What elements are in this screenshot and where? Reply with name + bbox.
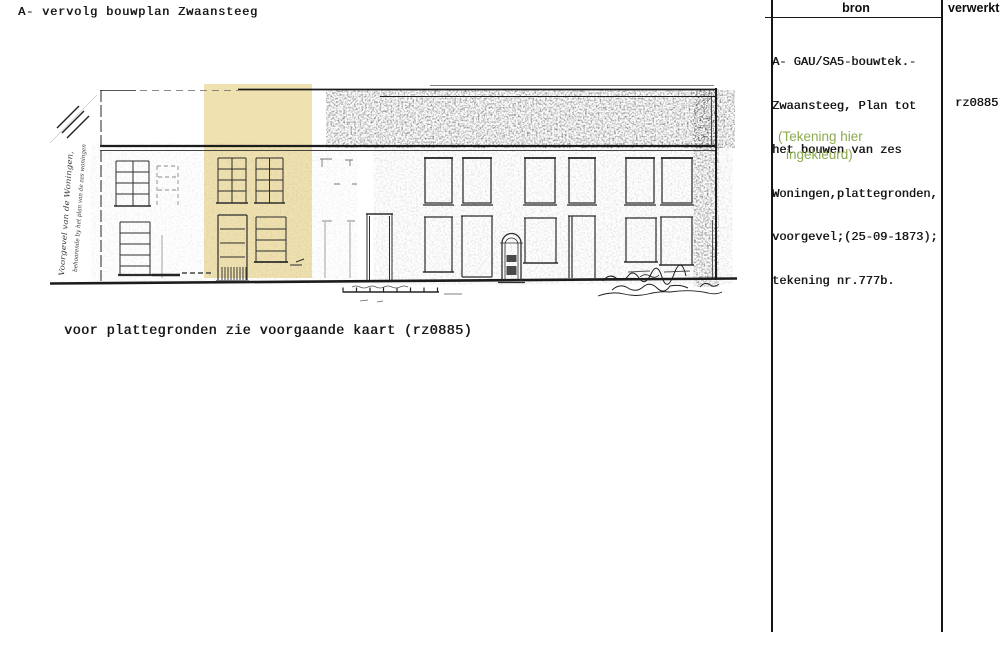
scan-noise (103, 93, 717, 278)
note-line: ingekleurd) (786, 146, 863, 164)
svg-text:behoorende by het plan van de: behoorende by het plan van de zes woning… (72, 144, 88, 272)
archive-card-page: A- vervolg bouwplan Zwaansteeg (0, 0, 1000, 648)
bron-text-line: Zwaansteeg, Plan tot (772, 99, 944, 114)
bron-text-line: voorgevel;(25-09-1873); (772, 230, 944, 245)
ground-line (50, 279, 737, 284)
column-header-bron: bron (771, 1, 941, 15)
scale-bar (343, 286, 462, 302)
facade-drawing: Voorgevel van de Woningen, behoorende by… (0, 0, 760, 320)
handwritten-annotation: Voorgevel van de Woningen, behoorende by… (57, 144, 88, 276)
bron-text-line: Woningen,plattegronden, (772, 187, 944, 202)
door (366, 214, 393, 280)
pen-marks (50, 95, 97, 143)
bron-text-line: tekening nr.777b. (772, 274, 944, 289)
colored-note: (Tekening hier ingekleurd) (778, 128, 863, 163)
column-header-verwerkt: verwerkt (948, 1, 999, 15)
drawing-caption: voor plattegronden zie voorgaande kaart … (64, 324, 472, 339)
verwerkt-cell: rz0885 (955, 96, 998, 110)
header-underline (765, 17, 942, 19)
bron-cell: A- GAU/SA5-bouwtek.- Zwaansteeg, Plan to… (772, 26, 944, 318)
bron-text-line: A- GAU/SA5-bouwtek.- (772, 55, 944, 70)
note-line: (Tekening hier (778, 128, 863, 146)
